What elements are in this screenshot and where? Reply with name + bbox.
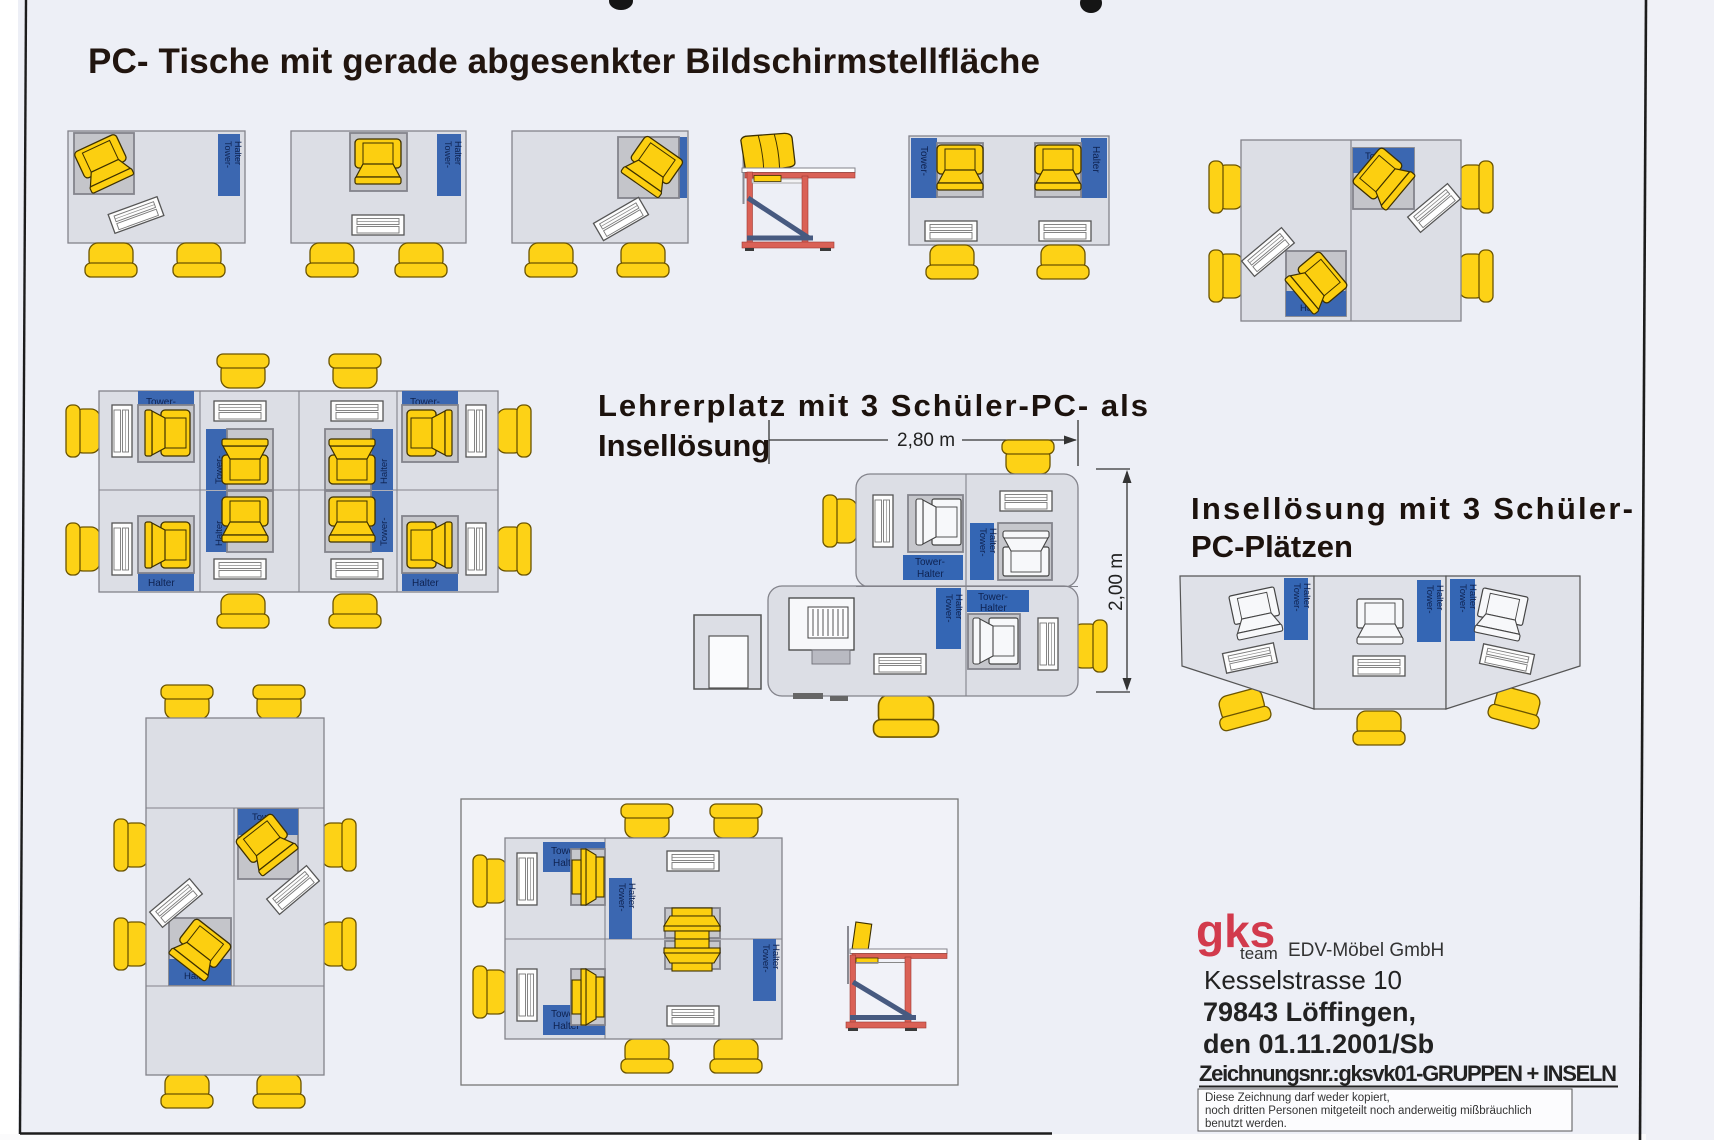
svg-text:Halter: Halter [412, 578, 439, 589]
svg-text:Tower-: Tower- [915, 557, 945, 568]
svg-text:Tower-: Tower- [223, 141, 233, 168]
svg-text:team: team [1240, 944, 1278, 963]
svg-text:Halter: Halter [1434, 585, 1445, 610]
svg-text:Halter: Halter [379, 459, 390, 484]
svg-text:PC- Tische mit gerade abgesenk: PC- Tische mit gerade abgesenkter Bildsc… [88, 42, 1040, 81]
svg-text:Tower-: Tower- [760, 944, 771, 973]
svg-text:79843 Löffingen,: 79843 Löffingen, [1203, 997, 1416, 1027]
svg-text:Lehrerplatz mit 3 Schüler-PC-: Lehrerplatz mit 3 Schüler-PC- als [598, 388, 1148, 423]
svg-text:Halter: Halter [1301, 583, 1312, 608]
svg-text:Tower-: Tower- [977, 528, 988, 557]
svg-text:Halter: Halter [626, 883, 637, 908]
svg-text:Halter: Halter [1090, 146, 1101, 173]
svg-text:Halter: Halter [980, 603, 1007, 614]
svg-text:Tower-: Tower- [1457, 584, 1468, 613]
svg-text:benutzt werden.: benutzt werden. [1205, 1118, 1287, 1130]
svg-text:Diese Zeichnung darf weder kop: Diese Zeichnung darf weder kopiert, [1205, 1092, 1390, 1104]
svg-text:Tower-: Tower- [443, 141, 453, 168]
svg-text:EDV-Möbel GmbH: EDV-Möbel GmbH [1288, 940, 1444, 961]
svg-text:2,00 m: 2,00 m [1106, 553, 1127, 611]
svg-text:Halter: Halter [953, 594, 964, 619]
svg-text:Insellösung mit 3 Schüler-: Insellösung mit 3 Schüler- [1191, 491, 1633, 526]
svg-text:Halter: Halter [987, 528, 998, 553]
svg-text:Halter: Halter [148, 578, 175, 589]
svg-text:2,80 m: 2,80 m [897, 430, 955, 451]
svg-text:Halter: Halter [770, 944, 781, 969]
svg-text:Halter: Halter [233, 141, 243, 165]
svg-text:Tower-: Tower- [379, 517, 390, 546]
svg-text:den 01.11.2001/Sb: den 01.11.2001/Sb [1203, 1029, 1434, 1059]
svg-text:Tower-: Tower- [1291, 583, 1302, 612]
svg-text:Tower-: Tower- [918, 146, 929, 176]
svg-text:Halter: Halter [453, 141, 463, 165]
svg-text:Tower-: Tower- [978, 592, 1008, 603]
svg-text:Tower-: Tower- [616, 883, 627, 912]
svg-text:Halter: Halter [917, 569, 944, 580]
svg-text:Insellösung: Insellösung [598, 428, 770, 463]
svg-text:PC-Plätzen: PC-Plätzen [1191, 529, 1353, 564]
svg-text:Tower-: Tower- [1424, 585, 1435, 614]
svg-text:Halter: Halter [1467, 584, 1478, 609]
svg-text:noch dritten Personen mitgetei: noch dritten Personen mitgeteilt noch an… [1205, 1105, 1532, 1117]
svg-text:Kesselstrasse 10: Kesselstrasse 10 [1204, 965, 1402, 995]
svg-text:Tower-: Tower- [943, 594, 954, 623]
svg-text:Zeichnungsnr.:gksvk01-GRUPPEN: Zeichnungsnr.:gksvk01-GRUPPEN + INSELN [1199, 1061, 1617, 1086]
